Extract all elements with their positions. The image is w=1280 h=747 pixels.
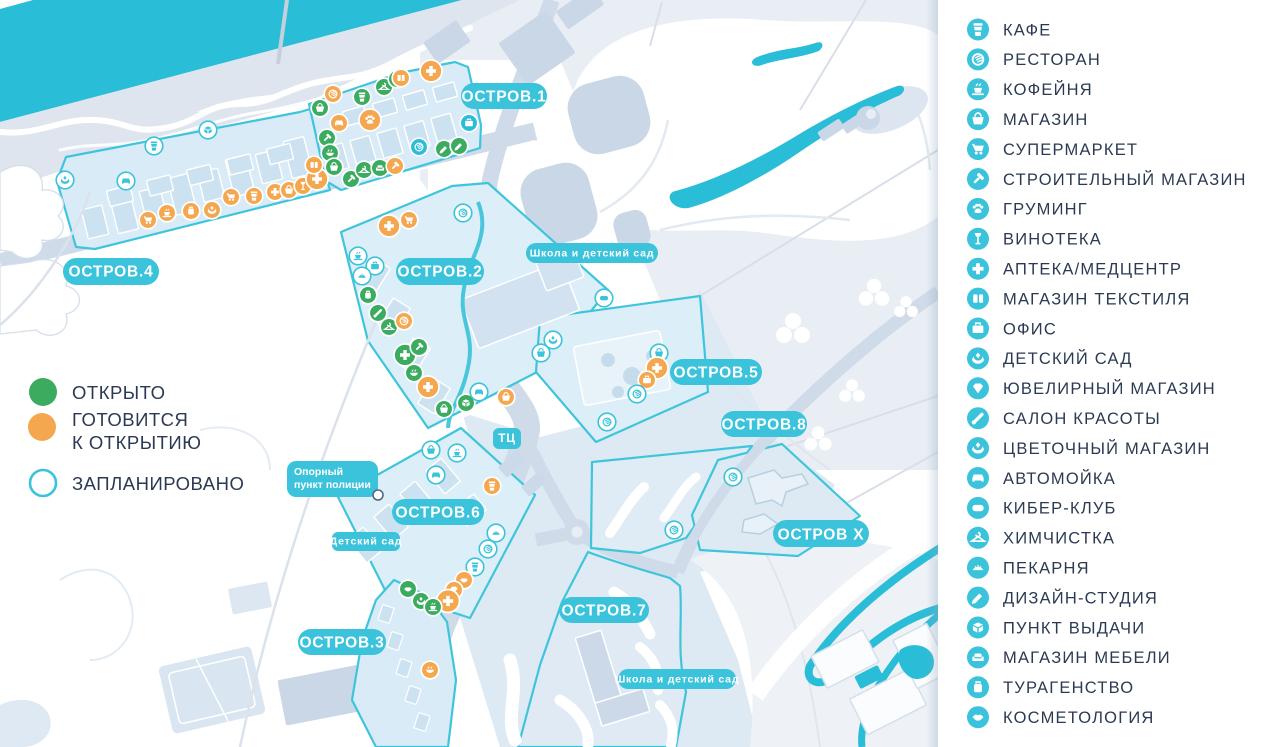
svg-text:КАФЕ: КАФЕ [1003,21,1051,39]
svg-text:ГОТОВИТСЯ: ГОТОВИТСЯ [72,409,188,430]
svg-text:ОТКРЫТО: ОТКРЫТО [72,382,166,403]
svg-text:К ОТКРЫТИЮ: К ОТКРЫТИЮ [72,432,201,453]
svg-text:Опорный: Опорный [294,466,343,478]
svg-text:ОСТРОВ.7: ОСТРОВ.7 [561,602,646,619]
svg-text:ПЕКАРНЯ: ПЕКАРНЯ [1003,560,1090,578]
svg-text:ДИЗАЙН-СТУДИЯ: ДИЗАЙН-СТУДИЯ [1003,588,1158,607]
svg-text:ОСТРОВ.2: ОСТРОВ.2 [397,263,482,280]
svg-text:МАГАЗИН ТЕКСТИЛЯ: МАГАЗИН ТЕКСТИЛЯ [1003,290,1191,308]
svg-text:ОСТРОВ.6: ОСТРОВ.6 [395,504,480,521]
svg-text:ОСТРОВ Х: ОСТРОВ Х [778,526,865,543]
svg-text:ПУНКТ ВЫДАЧИ: ПУНКТ ВЫДАЧИ [1003,619,1145,637]
svg-text:МАГАЗИН МЕБЕЛИ: МАГАЗИН МЕБЕЛИ [1003,649,1171,667]
svg-text:ТУРАГЕНСТВО: ТУРАГЕНСТВО [1003,679,1134,697]
svg-text:СТРОИТЕЛЬНЫЙ МАГАЗИН: СТРОИТЕЛЬНЫЙ МАГАЗИН [1003,170,1247,189]
svg-text:КОСМЕТОЛОГИЯ: КОСМЕТОЛОГИЯ [1003,709,1155,727]
svg-text:ЦВЕТОЧНЫЙ МАГАЗИН: ЦВЕТОЧНЫЙ МАГАЗИН [1003,439,1211,458]
svg-text:ОСТРОВ.3: ОСТРОВ.3 [299,634,384,651]
svg-text:ЗАПЛАНИРОВАНО: ЗАПЛАНИРОВАНО [72,473,244,494]
svg-text:АВТОМОЙКА: АВТОМОЙКА [1003,469,1116,488]
svg-text:СУПЕРМАРКЕТ: СУПЕРМАРКЕТ [1003,141,1138,159]
svg-text:пункт полиции: пункт полиции [294,479,371,491]
svg-text:ОФИС: ОФИС [1003,320,1057,338]
svg-text:ОСТРОВ.1: ОСТРОВ.1 [461,88,546,105]
svg-text:ОСТРОВ.5: ОСТРОВ.5 [673,364,758,381]
svg-text:Школа и детский сад: Школа и детский сад [530,248,655,260]
svg-text:ВИНОТЕКА: ВИНОТЕКА [1003,231,1102,249]
svg-text:Детский сад: Детский сад [330,536,403,548]
svg-text:ДЕТСКИЙ САД: ДЕТСКИЙ САД [1003,349,1133,368]
svg-text:САЛОН КРАСОТЫ: САЛОН КРАСОТЫ [1003,410,1161,428]
svg-text:КОФЕЙНЯ: КОФЕЙНЯ [1003,80,1093,99]
svg-text:ТЦ: ТЦ [498,431,516,445]
svg-text:ОСТРОВ.8: ОСТРОВ.8 [721,416,806,433]
svg-text:ГРУМИНГ: ГРУМИНГ [1003,201,1088,219]
svg-text:РЕСТОРАН: РЕСТОРАН [1003,51,1101,69]
svg-text:КИБЕР-КЛУБ: КИБЕР-КЛУБ [1003,500,1117,518]
svg-text:ЮВЕЛИРНЫЙ МАГАЗИН: ЮВЕЛИРНЫЙ МАГАЗИН [1003,379,1216,398]
svg-text:Школа и детский сад: Школа и детский сад [615,674,740,686]
svg-text:ХИМЧИСТКА: ХИМЧИСТКА [1003,530,1115,548]
svg-text:ОСТРОВ.4: ОСТРОВ.4 [68,263,153,280]
svg-text:АПТЕКА/МЕДЦЕНТР: АПТЕКА/МЕДЦЕНТР [1003,261,1182,279]
svg-text:МАГАЗИН: МАГАЗИН [1003,111,1089,129]
